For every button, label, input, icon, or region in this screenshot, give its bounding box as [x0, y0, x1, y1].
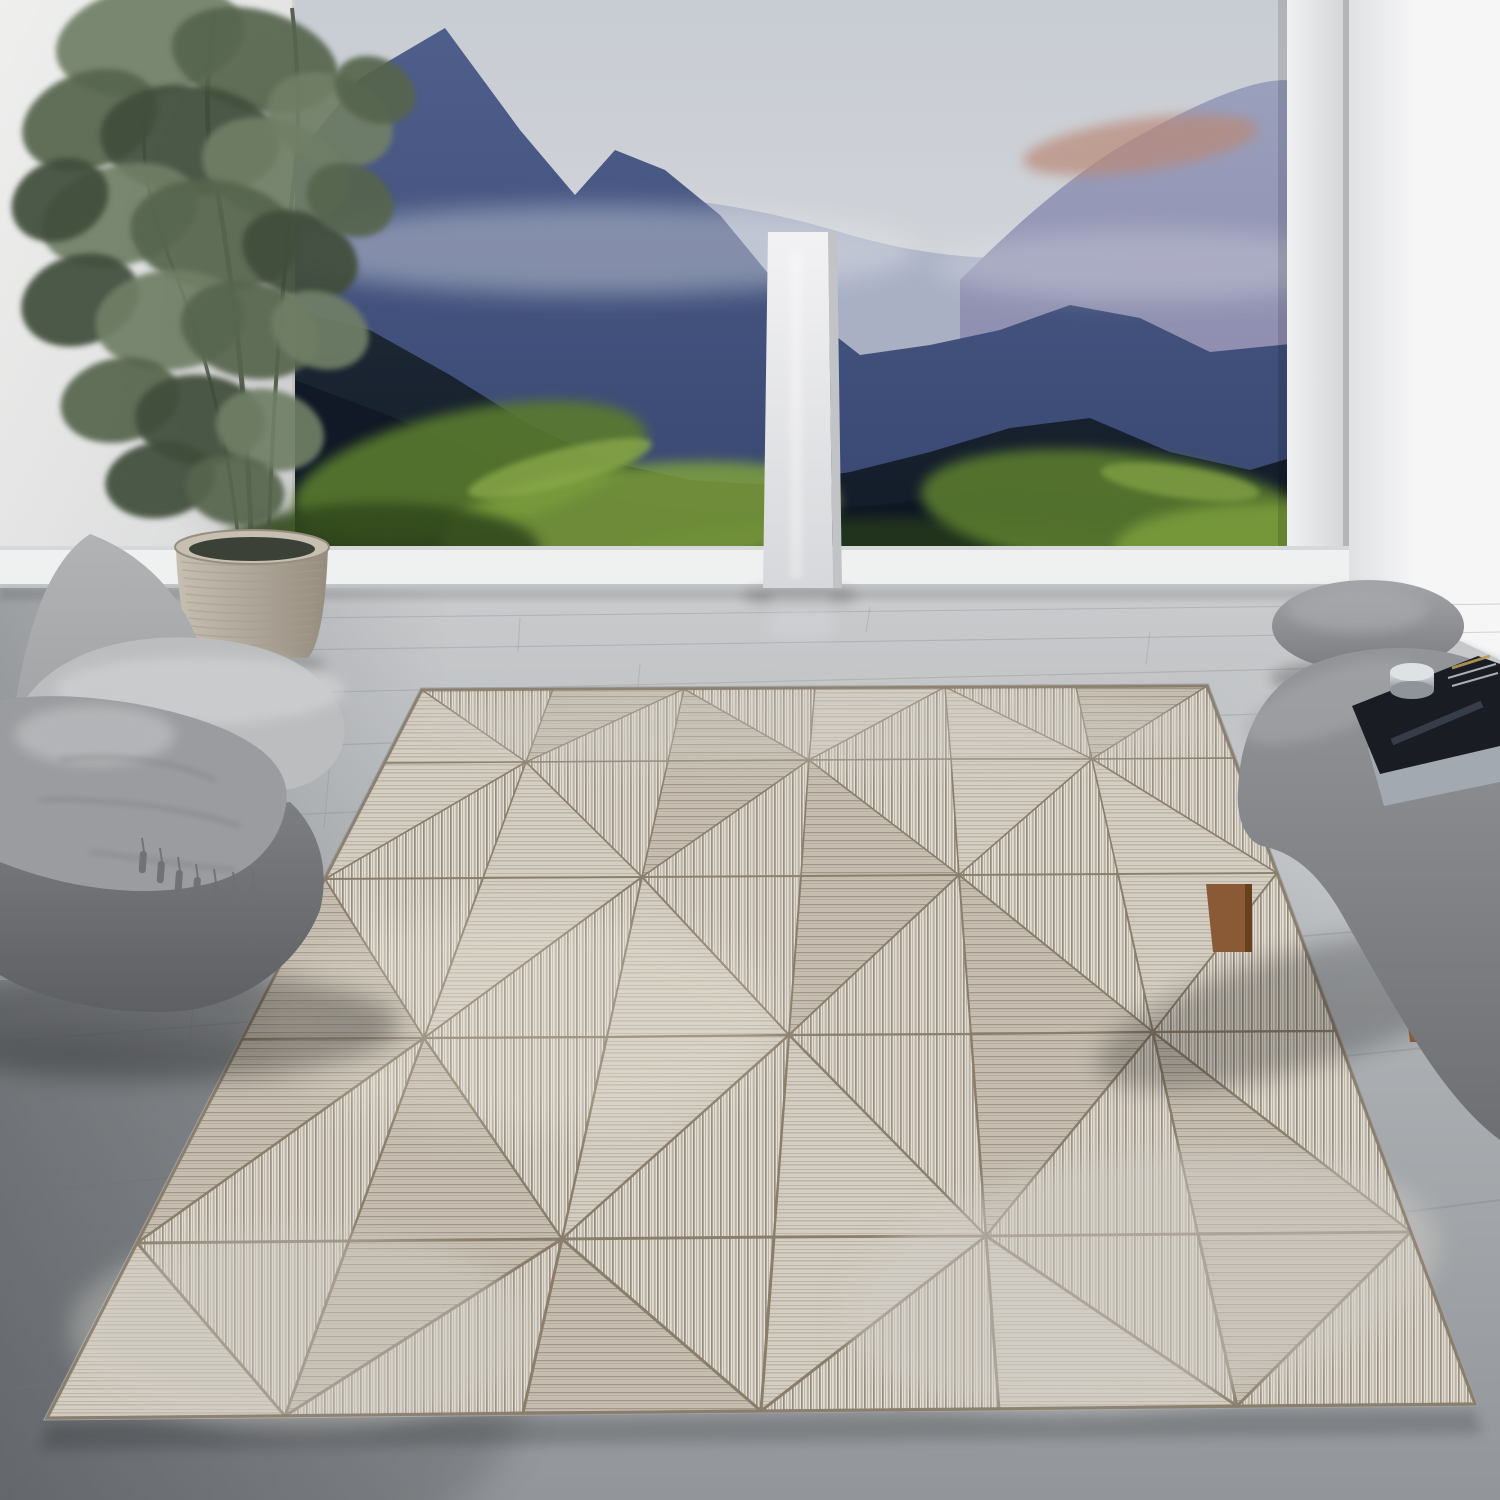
frame-bar — [1287, 0, 1349, 592]
frame-shadow-on-mural — [1278, 0, 1288, 592]
metal-disc-top — [1390, 663, 1434, 681]
rug-wash-top — [415, 686, 1215, 770]
metal-disc-bottom — [1390, 681, 1434, 699]
pot-soil — [189, 537, 315, 561]
living-room-rug-photo — [0, 0, 1500, 1500]
scene-canvas — [0, 0, 1500, 1500]
right-window-frame — [1278, 0, 1349, 592]
pouf-highlight — [1288, 588, 1428, 632]
right-wall-curtain — [1349, 0, 1500, 662]
right-wall — [1349, 0, 1500, 662]
pedestal-reflection — [770, 592, 832, 638]
frame-bar-edge — [1343, 0, 1349, 592]
bench-leg-left-side — [1245, 884, 1252, 952]
rug-wash-bottom-left — [70, 1230, 530, 1430]
pedestal-highlight — [790, 252, 802, 578]
